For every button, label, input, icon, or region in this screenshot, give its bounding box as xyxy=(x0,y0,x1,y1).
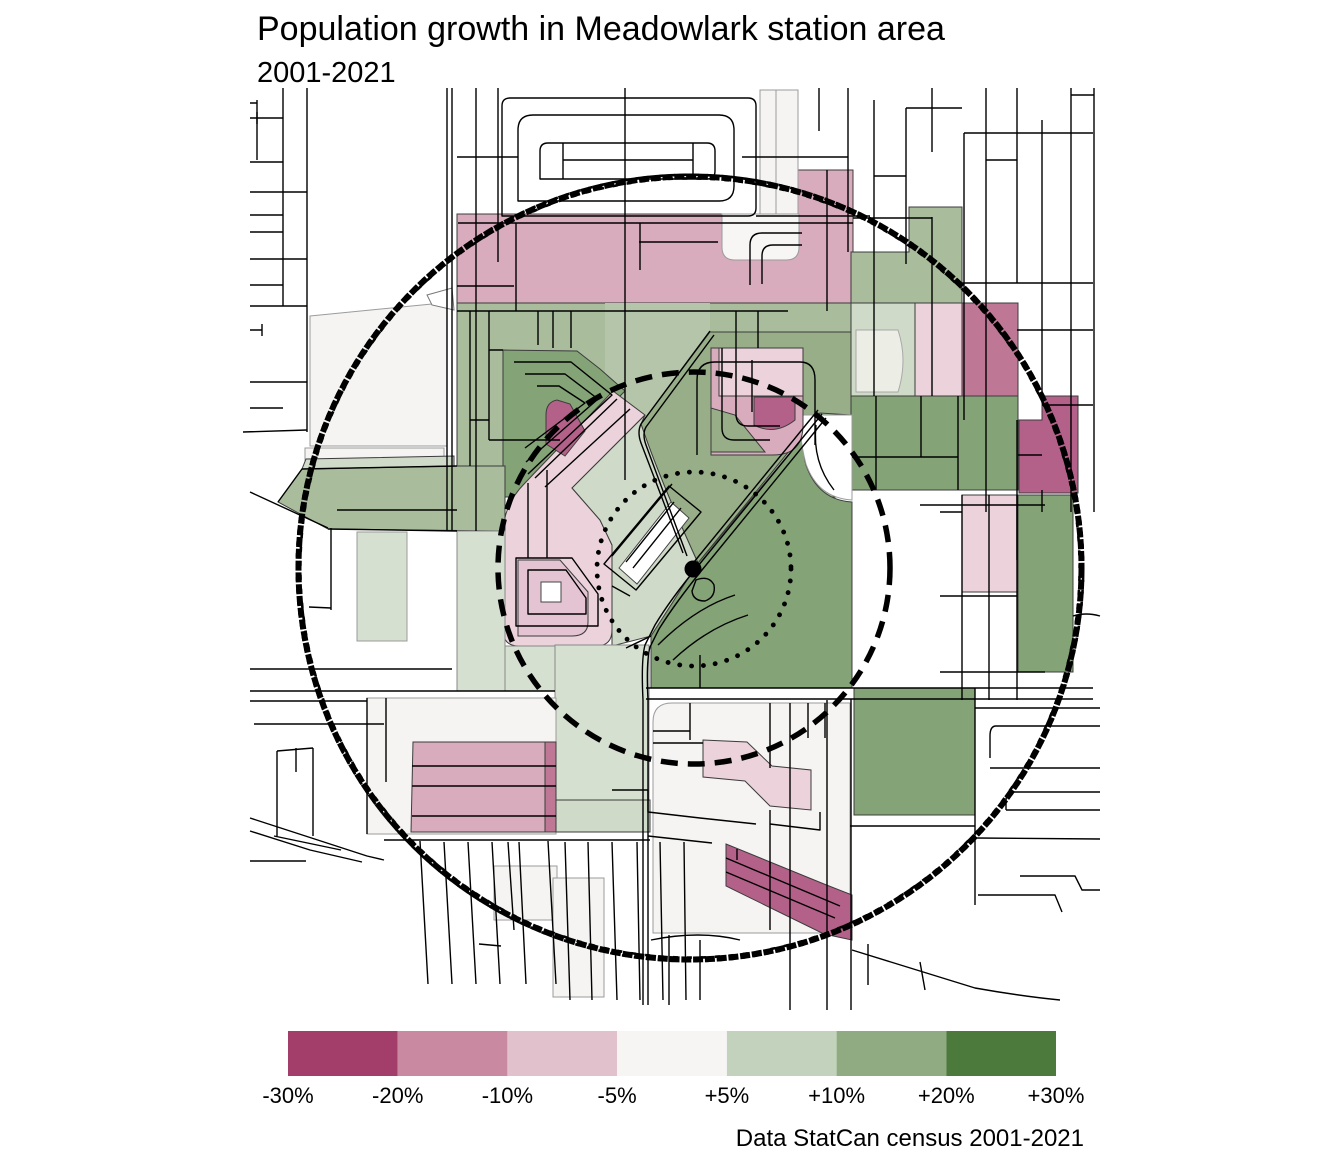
svg-text:Population growth in Meadowlar: Population growth in Meadowlark station … xyxy=(257,10,945,48)
svg-text:+30%: +30% xyxy=(1028,1083,1085,1108)
svg-text:+10%: +10% xyxy=(808,1083,865,1108)
svg-text:-30%: -30% xyxy=(262,1083,313,1108)
svg-text:2001-2021: 2001-2021 xyxy=(257,57,396,89)
svg-text:+20%: +20% xyxy=(918,1083,975,1108)
svg-text:-20%: -20% xyxy=(372,1083,423,1108)
svg-text:Data StatCan census 2001-2021: Data StatCan census 2001-2021 xyxy=(736,1125,1084,1152)
svg-text:-10%: -10% xyxy=(482,1083,533,1108)
svg-text:+5%: +5% xyxy=(705,1083,750,1108)
svg-text:-5%: -5% xyxy=(598,1083,637,1108)
